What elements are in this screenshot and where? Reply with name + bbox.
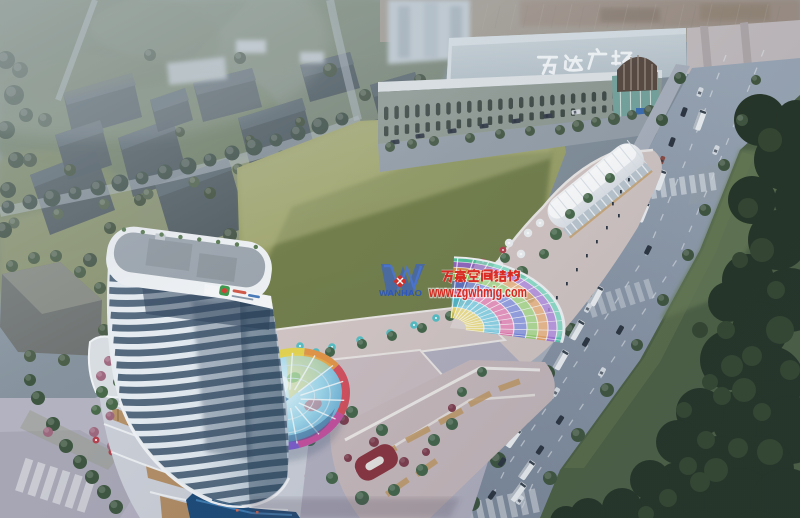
svg-text:WANHAO: WANHAO [379, 288, 422, 298]
svg-text:www.zgwhmjg.com: www.zgwhmjg.com [428, 285, 527, 301]
